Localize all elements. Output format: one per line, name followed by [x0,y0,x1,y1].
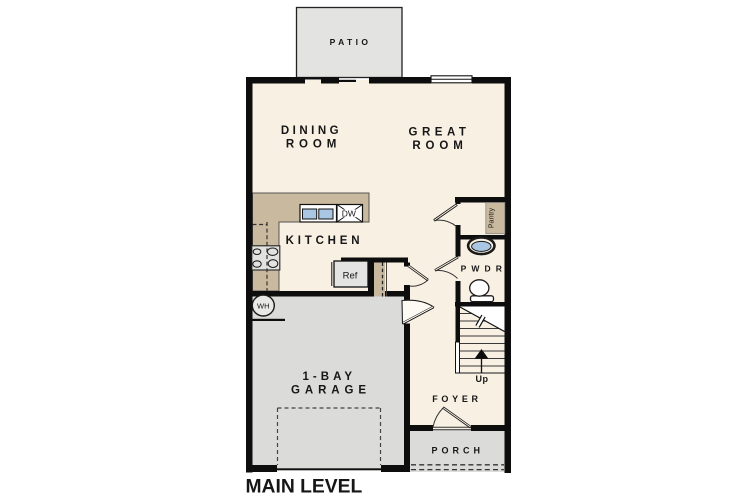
svg-text:ROOM: ROOM [412,140,467,152]
svg-text:Up: Up [476,374,489,384]
svg-text:GREAT: GREAT [409,127,471,139]
svg-text:Ref: Ref [343,271,358,282]
svg-text:PWDR: PWDR [461,264,507,274]
svg-text:WH: WH [257,302,270,311]
svg-text:PORCH: PORCH [431,446,484,456]
svg-text:DINING: DINING [281,125,342,137]
svg-text:Pantry: Pantry [489,207,496,228]
svg-text:ROOM: ROOM [286,139,341,151]
svg-text:MAIN LEVEL: MAIN LEVEL [246,476,363,497]
svg-text:1-BAY: 1-BAY [302,371,356,383]
svg-text:GARAGE: GARAGE [291,384,371,396]
svg-text:FOYER: FOYER [432,394,482,404]
svg-text:DW: DW [342,209,356,219]
svg-text:KITCHEN: KITCHEN [286,235,364,247]
svg-text:PATIO: PATIO [330,37,372,47]
